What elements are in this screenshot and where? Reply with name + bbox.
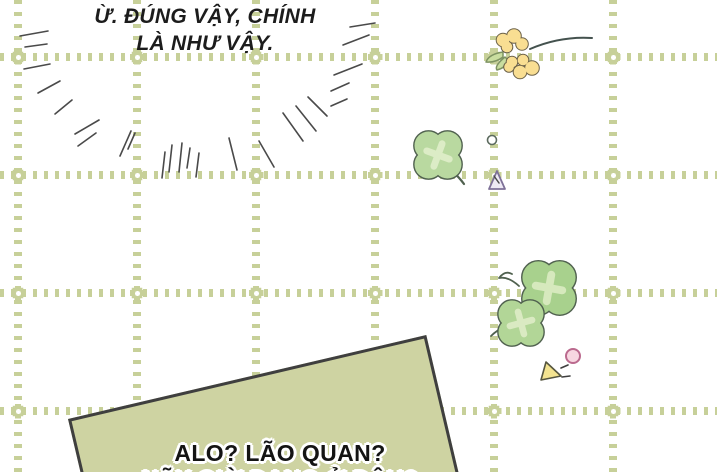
clover-single — [414, 131, 461, 178]
arrow-ticks — [561, 365, 570, 377]
flower-top-petals — [497, 29, 529, 53]
flower-stem-line — [530, 38, 592, 49]
mini-circle — [488, 136, 497, 145]
narration-line-1: Ừ. ĐÚNG VẬY, CHÍNH — [55, 3, 355, 30]
clover-pair-tendril-left — [499, 273, 519, 286]
speech-line-2: NÃY GIỜ ĐANG Ở ĐÂU? — [130, 467, 430, 472]
flower-bottom-petals — [504, 55, 539, 79]
clover-decorations — [414, 29, 592, 380]
yellow-arrow — [541, 362, 561, 380]
narration-line-2: LÀ NHƯ VẬY. — [55, 30, 355, 57]
speech-line-1: ALO? LÃO QUAN? — [130, 440, 430, 467]
narration-text: Ừ. ĐÚNG VẬY, CHÍNH LÀ NHƯ VẬY. — [55, 3, 355, 57]
pink-dot — [566, 349, 580, 363]
comic-page: Ừ. ĐÚNG VẬY, CHÍNH LÀ NHƯ VẬY. ALO? LÃO … — [0, 0, 717, 472]
clover-pair-lower — [498, 300, 543, 345]
speech-box-text: ALO? LÃO QUAN? NÃY GIỜ ĐANG Ở ĐÂU? — [130, 440, 430, 472]
